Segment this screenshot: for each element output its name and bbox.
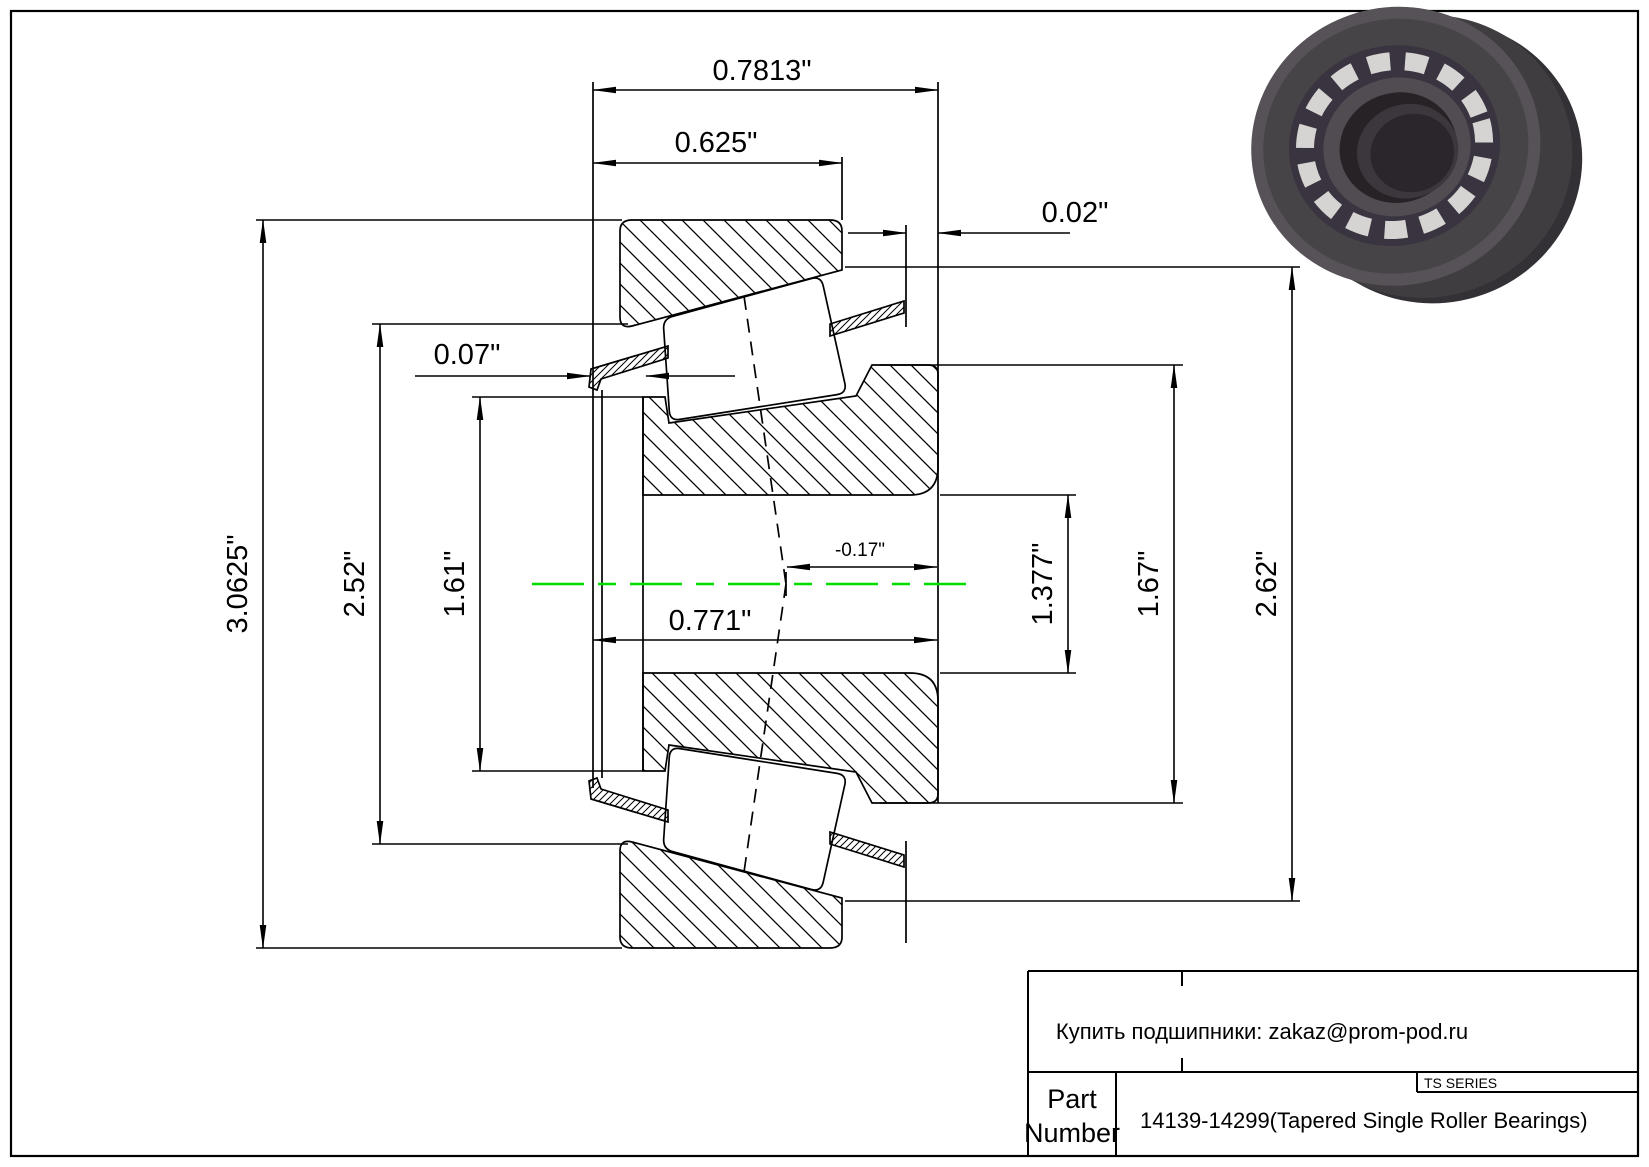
bearing-drawing-svg: 0.7813" 0.625" 0.02" 0.07" -0.17" 0.771"…	[0, 0, 1649, 1167]
title-block-contact: Купить подшипники: zakaz@prom-pod.ru	[1056, 1019, 1468, 1044]
cage-strip-back-lower	[830, 832, 904, 867]
dim-rib-od-label: 1.67"	[1133, 551, 1165, 618]
dim-cage-standout-label: 0.07"	[434, 339, 501, 371]
dim-front-rib-od-label: 1.61"	[439, 551, 471, 618]
dim-cup-back-id-label: 2.62"	[1251, 551, 1283, 618]
dim-cone-width-label: 0.771"	[669, 605, 752, 637]
dim-cup-od-label: 3.0625"	[222, 535, 254, 634]
bearing-section	[589, 82, 938, 948]
part-number-label-line1: Part	[1047, 1084, 1097, 1114]
dim-cup-standout-label: 0.02"	[1042, 197, 1109, 229]
dim-cup-width-label: 0.625"	[675, 127, 758, 159]
cage-strip-back-upper	[830, 301, 904, 336]
drawing-sheet: 0.7813" 0.625" 0.02" 0.07" -0.17" 0.771"…	[0, 0, 1649, 1167]
dim-cup-front-id-label: 2.52"	[339, 551, 371, 618]
bearing-3d-render	[1218, 0, 1616, 347]
dim-overall-width-label: 0.7813"	[713, 55, 812, 87]
series-badge: TS SERIES	[1424, 1075, 1497, 1091]
dim-load-center-label: -0.17"	[835, 540, 885, 561]
part-number-value: 14139-14299(Tapered Single Roller Bearin…	[1140, 1108, 1588, 1133]
cage-strip-front-upper	[589, 346, 668, 390]
cage-strip-front-lower	[589, 778, 668, 822]
dim-bore-label: 1.377"	[1027, 543, 1059, 626]
part-number-label-line2: Number	[1024, 1118, 1120, 1148]
